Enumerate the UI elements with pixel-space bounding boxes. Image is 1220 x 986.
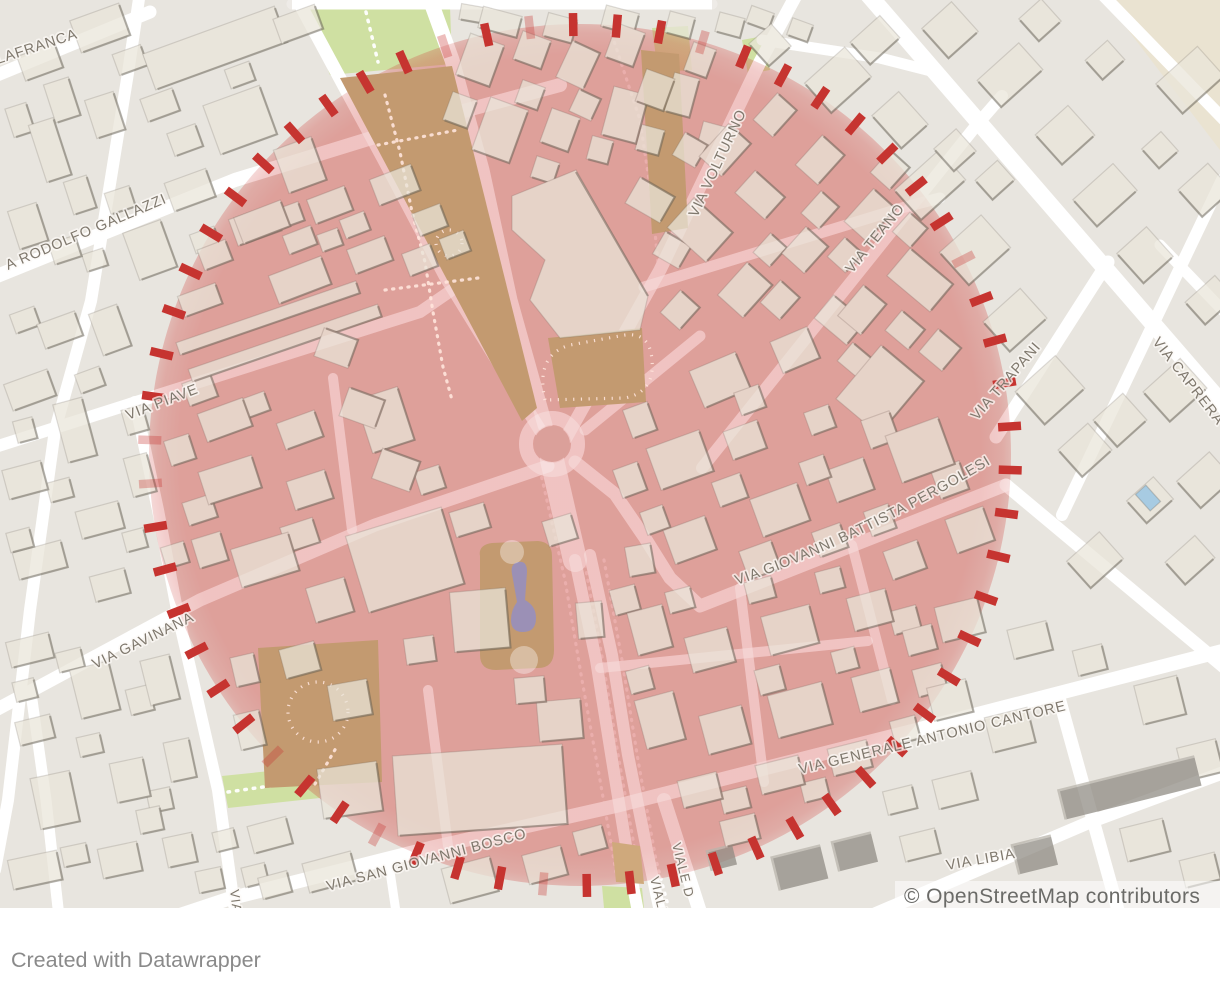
svg-text:VIA: VIA xyxy=(227,889,245,914)
svg-text:Created with Datawrapper: Created with Datawrapper xyxy=(11,948,261,972)
svg-text:© OpenStreetMap contributors: © OpenStreetMap contributors xyxy=(904,885,1200,908)
